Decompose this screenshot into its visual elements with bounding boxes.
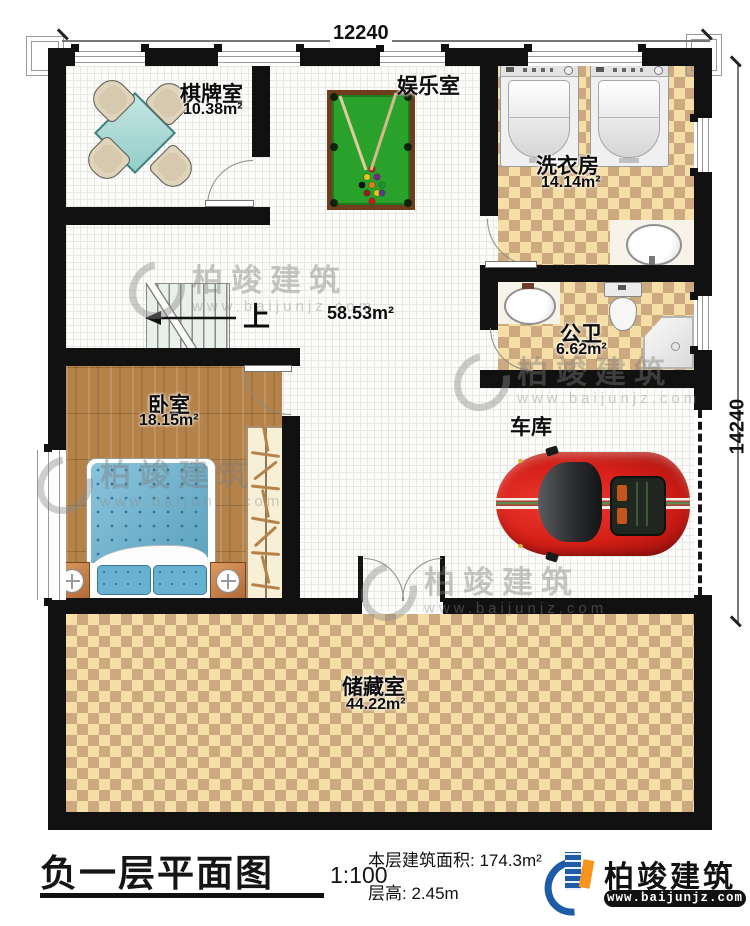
wall-segment [694, 66, 712, 118]
garage-label: 车库 [510, 411, 552, 441]
window-notch [638, 44, 646, 52]
sports-car [494, 450, 692, 558]
wall-segment [694, 350, 712, 410]
wall-segment [48, 598, 362, 614]
floor-area-value: 174.3m² [479, 851, 541, 870]
car-headlight [518, 544, 523, 548]
window-notch [690, 114, 698, 122]
washing-machine [590, 62, 669, 167]
hanger [251, 550, 280, 555]
bed [86, 458, 216, 602]
nightstand [210, 562, 246, 600]
brand-website: www.baijunjz.com [604, 890, 746, 907]
floor-height-label: 层高: [368, 884, 407, 903]
window-notch [71, 44, 79, 52]
storage-room-area: 44.22m² [346, 696, 406, 714]
hall-area: 58.53m² [327, 303, 394, 324]
window [694, 296, 712, 350]
billiard-ball [369, 198, 375, 204]
billiard-ball [369, 166, 375, 172]
stairs-up-label: 上 [243, 295, 270, 334]
dimension-tick [730, 55, 742, 67]
storage-double-door-leaf [358, 556, 363, 602]
top-dimension-value: 12240 [330, 22, 392, 45]
pillow [153, 565, 207, 595]
wall-segment [694, 172, 712, 296]
car-engine-window [610, 476, 666, 536]
billiard-ball [364, 190, 370, 196]
wall-segment [145, 48, 218, 66]
wall-segment [48, 66, 66, 450]
garage-door-opening [698, 410, 702, 595]
laundry-door-leaf [485, 261, 537, 268]
plan-title: 负一层平面图 [40, 843, 274, 897]
right-dimension-line [737, 64, 739, 624]
wall-segment [282, 416, 300, 598]
billiard-ball [374, 174, 380, 180]
bathroom-area: 6.62m² [556, 341, 607, 359]
window-notch [524, 44, 532, 52]
pillow [97, 565, 151, 595]
dimension-tick [730, 615, 742, 627]
brand-logo-icon [545, 850, 601, 910]
bedroom-door-leaf [244, 365, 292, 372]
billiard-ball [379, 190, 385, 196]
wall-segment [443, 598, 712, 614]
window [694, 118, 712, 172]
floor-plan-canvas: 棋牌室 10.38m² 娱乐室 洗衣房 14.14m² 公卫 6.62m² 58… [0, 0, 750, 926]
floor-area-label: 本层建筑面积: [368, 851, 475, 870]
billiard-ball [369, 182, 375, 188]
window-notch [376, 44, 384, 52]
wall-segment [300, 48, 380, 66]
wall-segment [445, 48, 528, 66]
window-notch [44, 598, 52, 606]
window [528, 48, 642, 66]
floor-height-line: 层高: 2.45m [368, 879, 459, 904]
wall-segment [48, 207, 270, 225]
floor-height-value: 2.45m [411, 884, 458, 903]
window-notch [296, 44, 304, 52]
title-underline [40, 893, 324, 898]
chess-room-area: 10.38m² [183, 101, 243, 119]
floor-area-line: 本层建筑面积: 174.3m² [368, 846, 542, 871]
billiard-ball [364, 174, 370, 180]
window-notch [214, 44, 222, 52]
laundry-faucet [649, 256, 655, 265]
window [380, 48, 445, 66]
bathroom-sink [504, 287, 556, 325]
car-headlight [518, 459, 523, 463]
toilet [602, 281, 642, 331]
window [75, 48, 145, 66]
staircase [146, 283, 230, 351]
car-cabin [538, 462, 602, 542]
laundry-room-area: 14.14m² [541, 174, 601, 192]
chess-room-door-leaf [205, 200, 254, 207]
wall-segment [694, 595, 712, 812]
window-notch [690, 346, 698, 354]
wall-segment [642, 48, 712, 66]
billiard-table [327, 90, 415, 210]
window-notch [690, 292, 698, 300]
wall-segment [480, 66, 498, 216]
window-notch [44, 444, 52, 452]
wall-segment [480, 370, 712, 388]
window [32, 450, 66, 600]
window-notch [690, 168, 698, 176]
billiard-ball [359, 182, 365, 188]
wall-segment [480, 282, 498, 330]
entertainment-room-label: 娱乐室 [397, 70, 460, 100]
window-notch [441, 44, 449, 52]
wall-segment [252, 66, 270, 157]
window [218, 48, 300, 66]
billiard-ball [379, 182, 385, 188]
bedroom-area: 18.15m² [139, 412, 199, 430]
wall-segment [48, 812, 712, 830]
wall-segment [48, 600, 66, 812]
wall-segment [48, 348, 300, 366]
bathroom-faucet [522, 283, 534, 289]
window-notch [141, 44, 149, 52]
right-dimension-value: 14240 [727, 391, 750, 463]
